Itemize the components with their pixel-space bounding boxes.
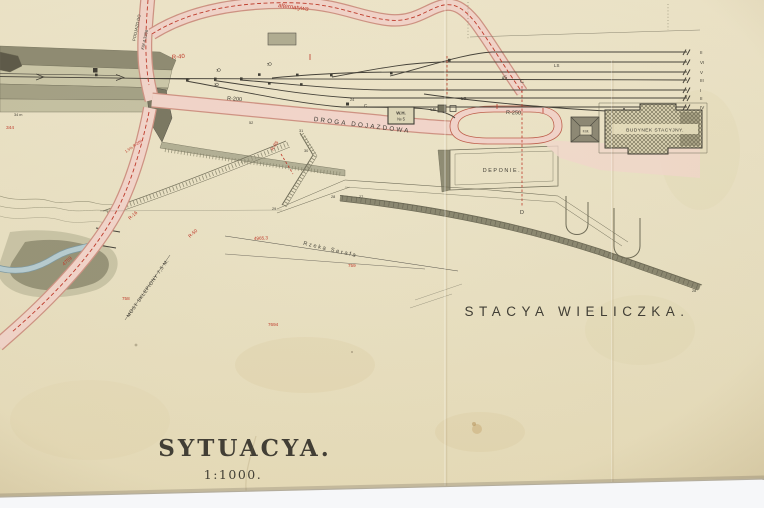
photographed-station-plan: SYTUACYA. 1:1000. STACYA WIELICZKA. DROG…	[0, 0, 764, 508]
station-plan-svg: SYTUACYA. 1:1000. STACYA WIELICZKA. DROG…	[0, 0, 764, 508]
vignette	[0, 0, 764, 500]
